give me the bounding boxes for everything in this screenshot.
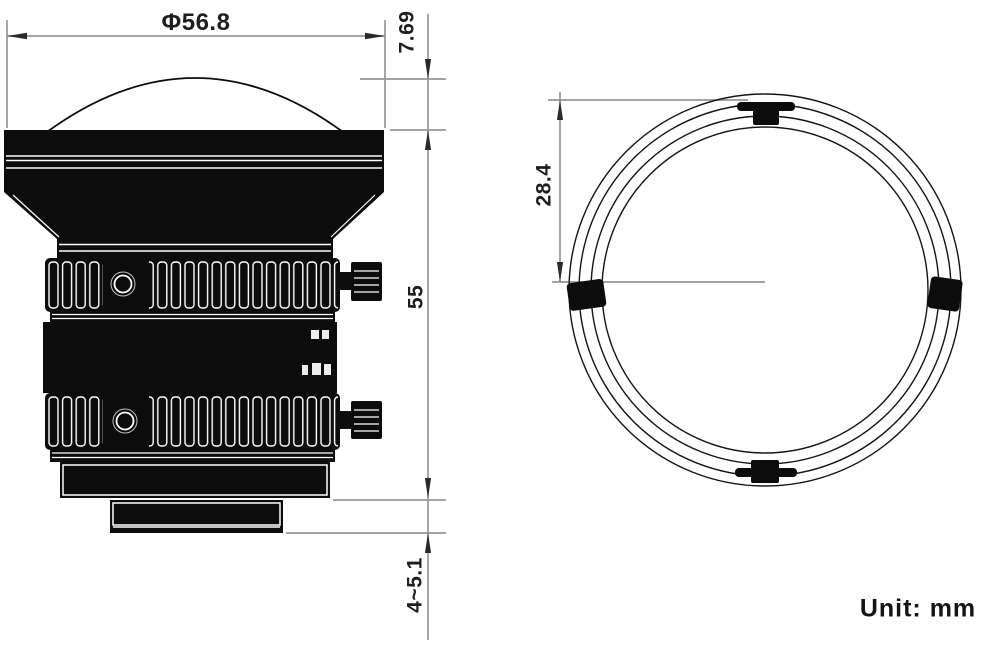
barrel-step-1 (50, 312, 335, 322)
dimension-label-diameter: Φ56.8 (162, 11, 231, 35)
thumbscrew-bottom (338, 401, 382, 439)
dimension-label-mount-depth: 4~5.1 (405, 557, 426, 613)
ring-detail-top (737, 102, 795, 125)
lens-dome-outline (47, 78, 343, 132)
front-view-drawing (566, 94, 963, 486)
barrel-step-2 (50, 450, 335, 462)
ring-detail-right (927, 276, 963, 312)
drawing-canvas: Φ56.8 7.69 55 4~5.1 28.4 Unit: mm (0, 0, 1000, 645)
dimension-lines-front-view (548, 92, 765, 282)
side-view-drawing (4, 78, 384, 533)
dimension-label-dome-height: 7.69 (397, 11, 418, 54)
iris-ring (45, 393, 340, 450)
unit-label: Unit: mm (860, 595, 976, 624)
lens-barrel-circles (569, 94, 961, 486)
dimension-label-body-length: 55 (406, 285, 427, 309)
middle-barrel (43, 322, 337, 393)
upper-barrel (57, 239, 333, 258)
thumbscrew-top (338, 262, 382, 301)
rear-mount (110, 500, 283, 533)
head-chamfer (4, 192, 384, 239)
dimension-label-radius: 28.4 (534, 164, 555, 207)
ring-detail-left (566, 278, 607, 311)
screw-hole (115, 276, 132, 293)
screw-hole (117, 413, 134, 430)
lower-body (60, 462, 330, 498)
focus-ring (45, 258, 340, 312)
technical-drawing (0, 0, 1000, 645)
